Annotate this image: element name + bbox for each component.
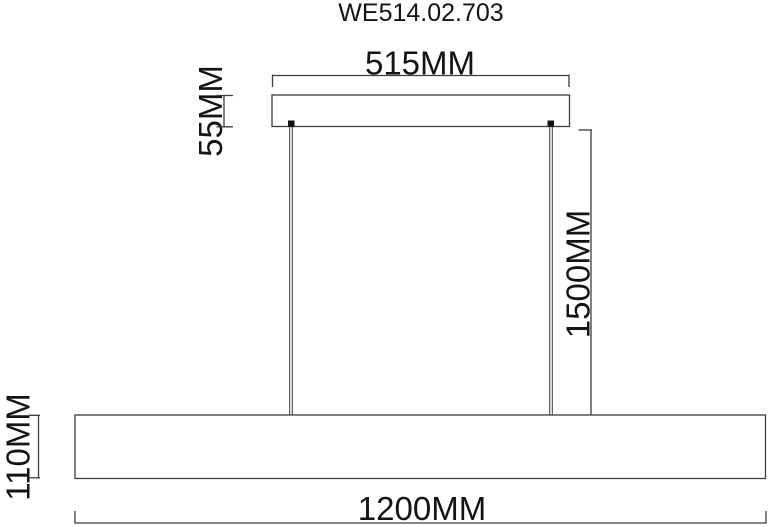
svg-text:110MM: 110MM [0, 393, 37, 501]
svg-text:1200MM: 1200MM [358, 490, 486, 527]
svg-text:WE514.02.703: WE514.02.703 [338, 0, 503, 27]
